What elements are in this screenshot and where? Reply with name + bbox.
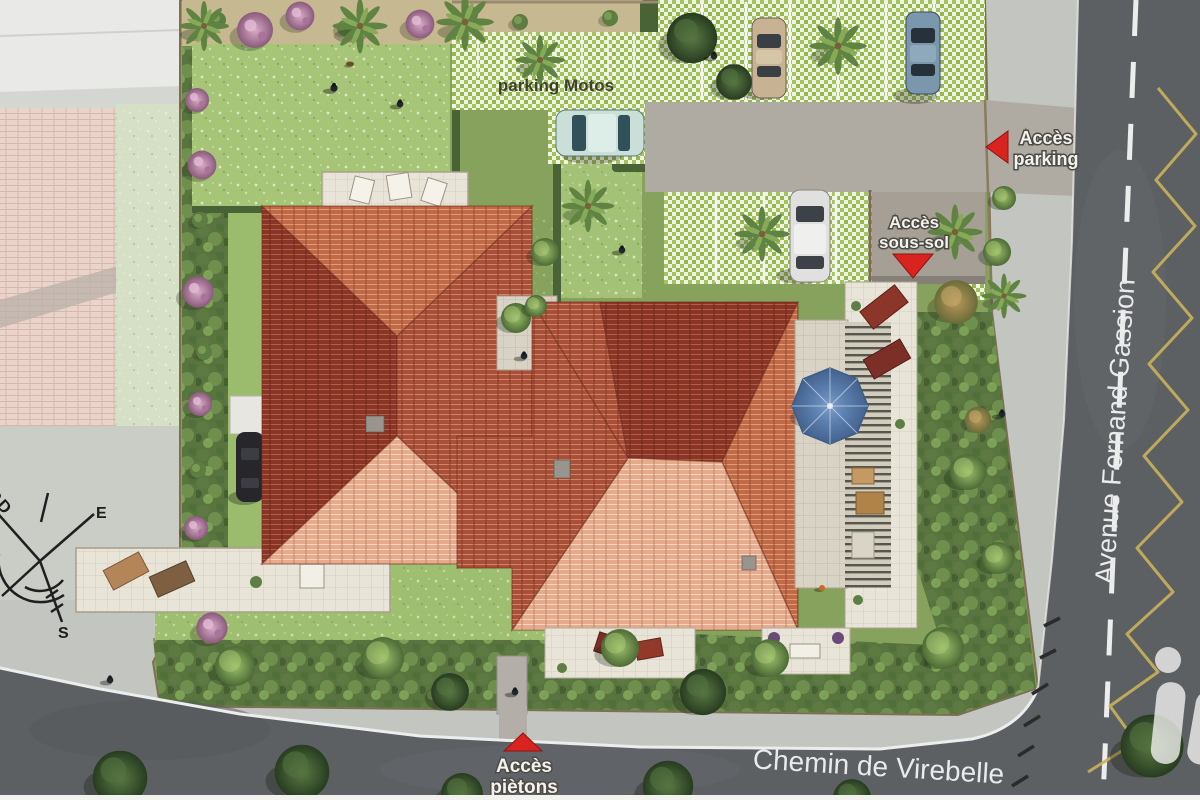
acces-pietons-line2: piètons <box>490 777 558 798</box>
compass-south-label: S <box>58 625 71 642</box>
car-icon <box>556 110 644 164</box>
compass-east-label: E <box>96 505 109 522</box>
acces-parking-line1: Accès <box>1019 128 1072 148</box>
car-icon <box>236 432 264 502</box>
acces-parking-line2: parking <box>1013 149 1078 169</box>
terrace-east <box>790 282 917 628</box>
acces-pietons-line1: Accès <box>496 756 552 777</box>
parking-motos-label: parking Motos <box>498 76 614 95</box>
site-plan: parking Motos <box>0 0 1200 800</box>
acces-sous-sol-line2: sous-sol <box>879 233 949 252</box>
site-plan-canvas: parking Motos <box>0 0 1200 800</box>
image-border <box>0 795 1200 800</box>
acces-sous-sol-line1: Accès <box>889 213 939 232</box>
